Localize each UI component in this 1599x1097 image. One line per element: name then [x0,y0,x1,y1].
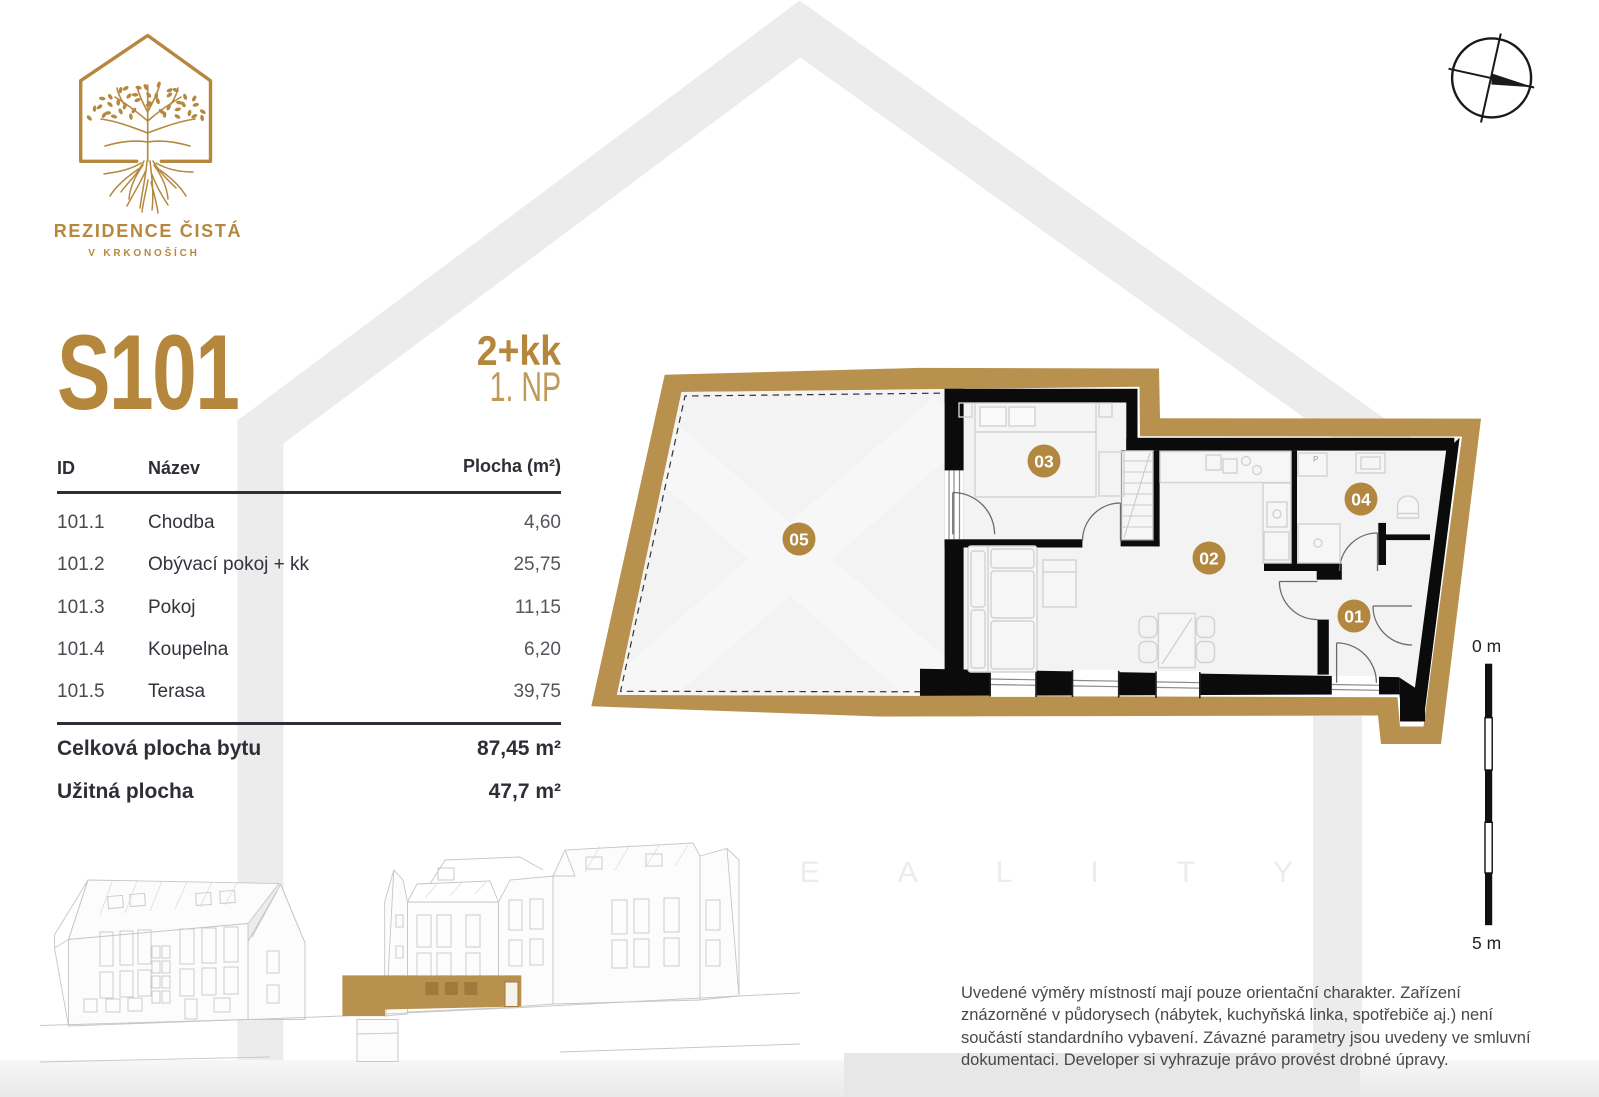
svg-text:02: 02 [1199,549,1219,569]
svg-text:REALITY: REALITY [700,856,1371,889]
svg-text:P: P [1313,455,1318,464]
svg-text:03: 03 [1034,452,1054,472]
svg-text:04: 04 [1351,490,1371,510]
svg-text:05: 05 [789,530,809,550]
svg-text:01: 01 [1344,607,1364,627]
svg-text:5 m: 5 m [1472,933,1501,953]
svg-text:0 m: 0 m [1472,636,1501,656]
